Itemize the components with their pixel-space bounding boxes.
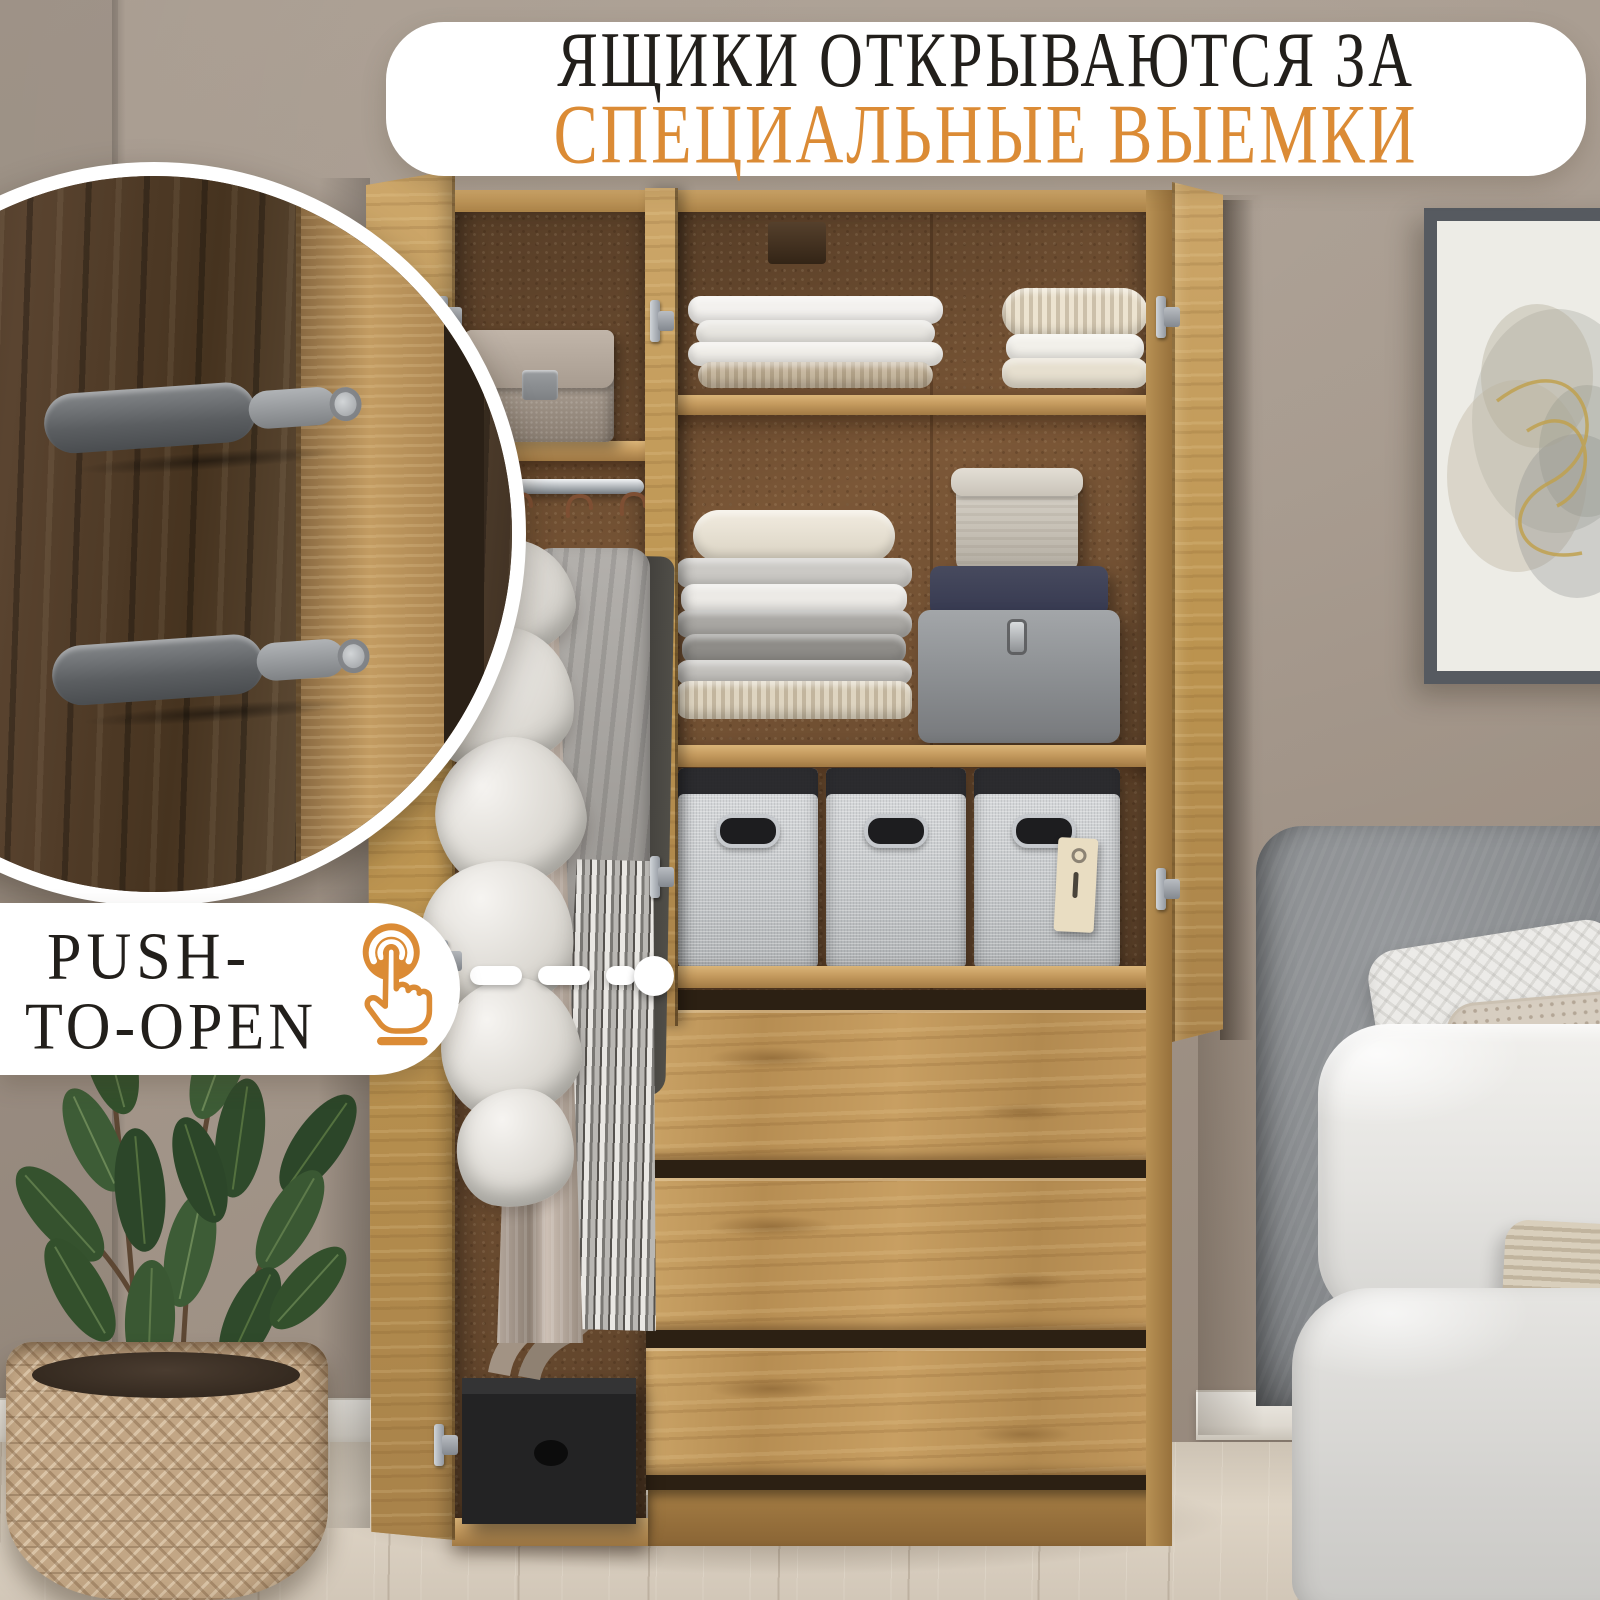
folded-towels-stack (688, 300, 943, 398)
door-hinge (1156, 296, 1180, 338)
fabric-storage-cube (974, 768, 1120, 968)
latch-plunger (247, 386, 337, 430)
bedroom-product-scene: ЯЩИКИ ОТКРЫВАЮТСЯ ЗА СПЕЦИАЛЬНЫЕ ВЫЕМКИ … (0, 0, 1600, 1600)
folded-item (1002, 288, 1148, 338)
folded-item (676, 681, 912, 719)
basket-paper-tag (1054, 837, 1099, 933)
folded-sweaters-stack (676, 514, 912, 747)
dashed-connector-segment (470, 966, 522, 985)
drawer-3 (646, 1348, 1170, 1475)
abstract-artwork (1437, 221, 1600, 671)
latch-tip (336, 638, 370, 674)
basket-handle-hole (716, 814, 780, 848)
headline-banner: ЯЩИКИ ОТКРЫВАЮТСЯ ЗА СПЕЦИАЛЬНЫЕ ВЫЕМКИ (386, 22, 1586, 176)
tap-finger-icon (348, 919, 440, 1051)
push-label-line1: PUSH- (47, 919, 251, 996)
push-latch-detail-inset (0, 162, 526, 906)
right-door-shadow (1220, 200, 1254, 1040)
woven-plant-pot (6, 1342, 328, 1600)
hatbox-beige (956, 468, 1078, 572)
fabric-storage-cube (678, 768, 818, 968)
right-compartment-lower-shelf (656, 966, 1166, 988)
connector-endpoint-dot (634, 956, 674, 996)
wardrobe-top-panel (452, 190, 1172, 212)
push-label-line2: TO-OPEN (25, 989, 317, 1066)
wall-art-mat (1437, 221, 1600, 671)
right-compartment-top-shelf (660, 395, 1160, 415)
folded-knitwear-stack (1002, 292, 1148, 398)
basket-handle-hole (864, 814, 928, 848)
bed-duvet (1292, 1288, 1600, 1600)
dashed-connector-segment (538, 966, 590, 985)
door-damper-bracket (768, 222, 826, 264)
folded-item (693, 510, 896, 562)
drawer-stack (646, 990, 1170, 1490)
push-to-open-callout: PUSH- TO-OPEN (0, 903, 460, 1075)
wardrobe-plinth (648, 1490, 1170, 1546)
folded-item (1002, 358, 1148, 388)
fabric-storage-cube (826, 768, 966, 968)
dashed-connector-segment (606, 966, 636, 985)
latch-tip (328, 386, 362, 422)
drawer-2 (646, 1178, 1170, 1330)
door-hinge (650, 856, 674, 898)
black-shoe-box (462, 1378, 636, 1524)
door-hinge (1156, 868, 1180, 910)
latch-plunger (255, 638, 345, 682)
hatbox-navy (930, 566, 1108, 616)
folded-item (698, 362, 933, 388)
wall-art-frame (1424, 208, 1600, 684)
headline-line2: СПЕЦИАЛЬНЫЕ ВЫЕМКИ (554, 93, 1419, 176)
drawer-1 (646, 1010, 1170, 1160)
inset-oak-door-edge (296, 176, 453, 892)
handbag-clasp (522, 370, 558, 400)
right-compartment-middle-shelf (658, 745, 1164, 767)
door-hinge (434, 1424, 458, 1466)
inset-interior-shadow (444, 176, 484, 892)
door-hinge (650, 300, 674, 342)
hatbox-gray (918, 610, 1120, 743)
